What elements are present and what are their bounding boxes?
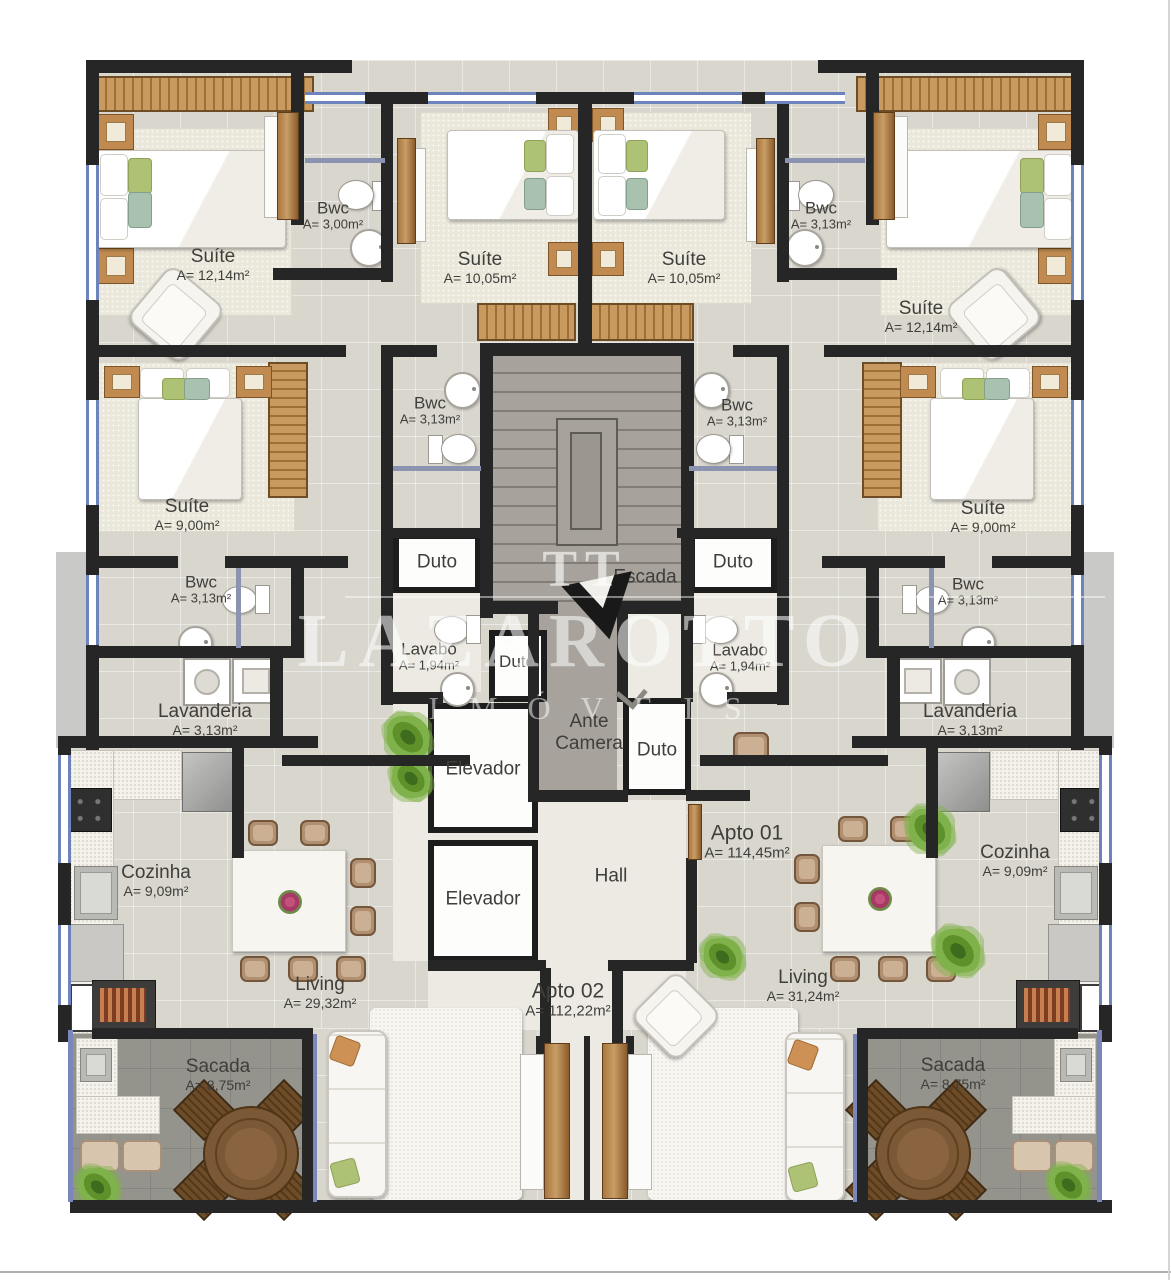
- room-label-lavanderia-l: LavanderiaA= 3,13m²: [158, 702, 252, 738]
- stair-direction-arrow: [552, 570, 659, 677]
- room-label-apto-02: Apto 02A= 112,22m²: [525, 980, 610, 1019]
- room-label-suite-ml: SuíteA= 9,00m²: [155, 497, 220, 533]
- room-label-suite-mr: SuíteA= 9,00m²: [951, 499, 1016, 535]
- room-label-living-r: LivingA= 31,24m²: [767, 968, 840, 1004]
- room-label-apto-01: Apto 01A= 114,45m²: [704, 822, 789, 861]
- room-label-elevador-1: Elevador: [446, 760, 521, 781]
- room-label-cozinha-r: CozinhaA= 9,09m²: [980, 843, 1050, 879]
- room-label-duto-bl: Duto: [499, 653, 535, 671]
- room-label-bwc-tr: BwcA= 3,13m²: [791, 200, 851, 233]
- room-label-lavanderia-r: LavanderiaA= 3,13m²: [923, 702, 1017, 738]
- room-label-suite-tcr: SuíteA= 10,05m²: [648, 250, 721, 286]
- floor-plan-page: SuíteA= 12,14m²BwcA= 3,00m²SuíteA= 10,05…: [0, 0, 1171, 1280]
- room-label-sacada-r: SacadaA= 8,75m²: [921, 1056, 986, 1092]
- room-label-suite-tr: SuíteA= 12,14m²: [885, 299, 958, 335]
- image-border: [1168, 0, 1170, 1280]
- room-label-suite-tl: SuíteA= 12,14m²: [177, 247, 250, 283]
- room-label-bwc-tl: BwcA= 3,00m²: [303, 200, 363, 233]
- room-label-cozinha-l: CozinhaA= 9,09m²: [121, 863, 191, 899]
- floor-plan: SuíteA= 12,14m²BwcA= 3,00m²SuíteA= 10,05…: [0, 0, 1171, 1280]
- room-label-bwc-mr: BwcA= 3,13m²: [938, 576, 998, 609]
- room-label-suite-tcl: SuíteA= 10,05m²: [444, 250, 517, 286]
- room-label-duto-cr: Duto: [637, 741, 677, 762]
- room-label-ante-camera: AnteCamera: [555, 712, 623, 754]
- room-label-sacada-l: SacadaA= 8,75m²: [186, 1057, 251, 1093]
- room-label-duto-r: Duto: [713, 553, 753, 574]
- room-label-hall: Hall: [595, 867, 628, 888]
- room-label-living-l: LivingA= 29,32m²: [284, 975, 357, 1011]
- room-label-elevador-2: Elevador: [446, 890, 521, 911]
- room-label-lavabo-r: LavaboA= 1,94m²: [710, 642, 770, 675]
- room-label-bwc-mr-inner: BwcA= 3,13m²: [707, 397, 767, 430]
- room-label-duto-l: Duto: [417, 553, 457, 574]
- room-label-bwc-ml: BwcA= 3,13m²: [171, 574, 231, 607]
- room-label-lavabo-l: LavaboA= 1,94m²: [399, 641, 459, 674]
- image-border: [0, 1271, 1171, 1273]
- room-label-bwc-ml-inner: BwcA= 3,13m²: [400, 395, 460, 428]
